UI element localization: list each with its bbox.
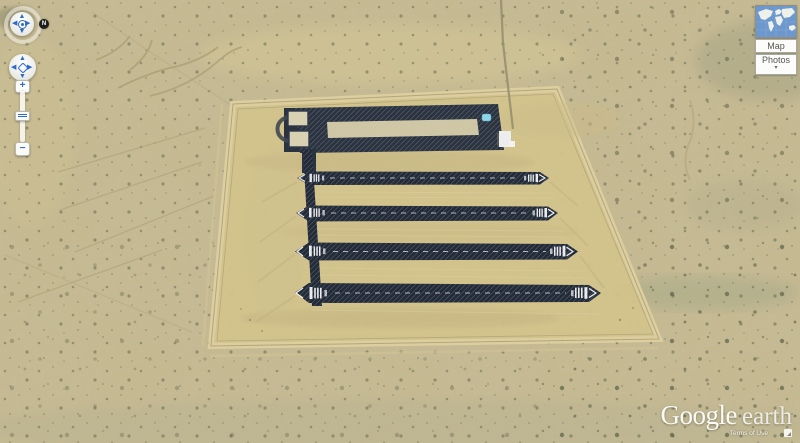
- look-joystick[interactable]: ▲ ▼ ◀ ▶: [10, 12, 34, 36]
- runway: [297, 172, 549, 186]
- runway: [295, 283, 601, 303]
- satellite-viewport[interactable]: [0, 0, 800, 443]
- eye-icon: [18, 20, 27, 29]
- helipad: [289, 131, 309, 147]
- helipad: [288, 111, 308, 126]
- terms-of-use-link[interactable]: Terms of Use: [730, 430, 768, 437]
- photos-button-label: Photos: [762, 55, 790, 65]
- overview-map-thumbnail[interactable]: [755, 5, 797, 38]
- zoom-out-button[interactable]: −: [15, 142, 30, 156]
- google-earth-logo: Googleearth: [661, 400, 792, 431]
- north-button[interactable]: N: [39, 19, 49, 29]
- photos-button[interactable]: Photos ▾: [755, 54, 797, 75]
- satellite-imagery: [0, 0, 800, 443]
- runway: [295, 243, 578, 261]
- pad-inner-strip: [327, 119, 479, 138]
- brand-text: Google: [661, 400, 737, 430]
- move-joystick[interactable]: ▲ ▼ ◀ ▶: [9, 54, 36, 81]
- runway: [296, 206, 558, 222]
- navigation-controls: ▲ ▼ ◀ ▶ N ▲ ▼ ◀ ▶ + −: [0, 0, 60, 170]
- water-tank: [482, 114, 491, 121]
- watermark: Googleearth Terms of Use: [661, 400, 792, 437]
- google-earth-window: ▲ ▼ ◀ ▶ N ▲ ▼ ◀ ▶ + −: [0, 0, 800, 443]
- chevron-down-icon: ▾: [756, 65, 796, 71]
- product-text: earth: [742, 403, 792, 430]
- map-button[interactable]: Map: [755, 39, 797, 53]
- expand-icon[interactable]: [784, 429, 792, 437]
- zoom-slider-handle[interactable]: [15, 111, 30, 121]
- layers-panel: Map Photos ▾: [755, 5, 797, 75]
